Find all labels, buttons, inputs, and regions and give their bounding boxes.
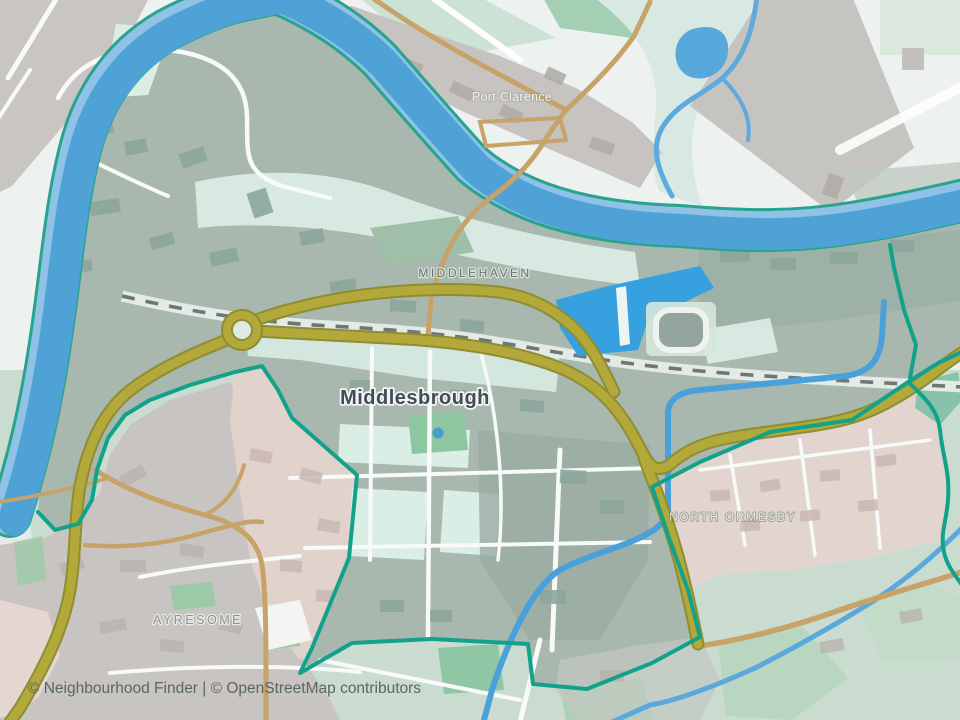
- label-port-clarence: Port Clarence: [472, 90, 552, 104]
- map-attribution: © Neighbourhood Finder | © OpenStreetMap…: [28, 680, 421, 697]
- label-middlehaven: MIDDLEHAVEN: [418, 266, 531, 280]
- label-middlesbrough: Middlesbrough: [340, 387, 490, 409]
- map-viewport[interactable]: Port Clarence MIDDLEHAVEN Middlesbrough …: [0, 0, 960, 720]
- riverside-stadium: [646, 302, 716, 356]
- map-canvas[interactable]: Port Clarence MIDDLEHAVEN Middlesbrough …: [0, 0, 960, 720]
- label-ayresome: AYRESOME: [153, 613, 243, 627]
- label-north-ormesby: NORTH ORMESBY: [669, 512, 796, 524]
